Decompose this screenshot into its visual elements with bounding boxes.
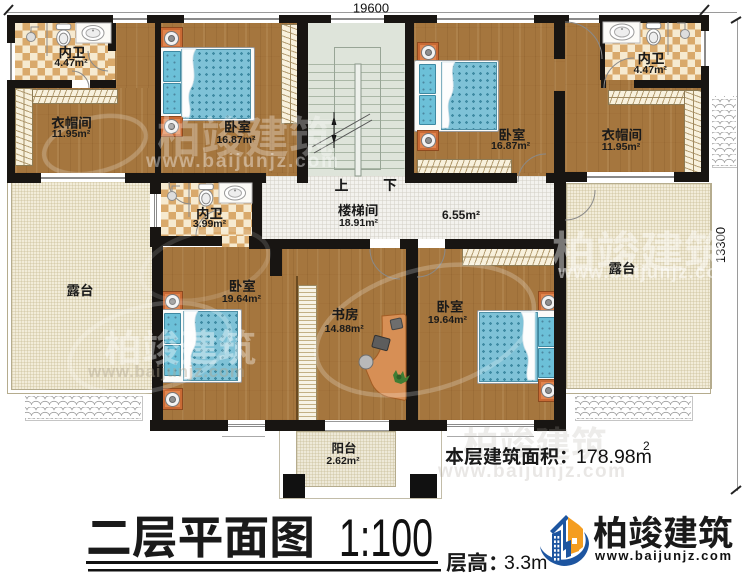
svg-text:2: 2	[643, 439, 650, 453]
svg-text:1:100: 1:100	[339, 509, 433, 568]
svg-text:www.baijunjz.com: www.baijunjz.com	[594, 548, 731, 563]
svg-text:178.98m: 178.98m	[576, 446, 652, 468]
svg-text:3.3m: 3.3m	[504, 552, 547, 574]
svg-text:www.baijunjz.com: www.baijunjz.com	[145, 151, 342, 172]
svg-text:19600: 19600	[353, 1, 389, 16]
svg-text:www.baijunjz.com: www.baijunjz.com	[557, 262, 738, 282]
svg-text:www.baijunjz.com: www.baijunjz.com	[87, 362, 248, 381]
